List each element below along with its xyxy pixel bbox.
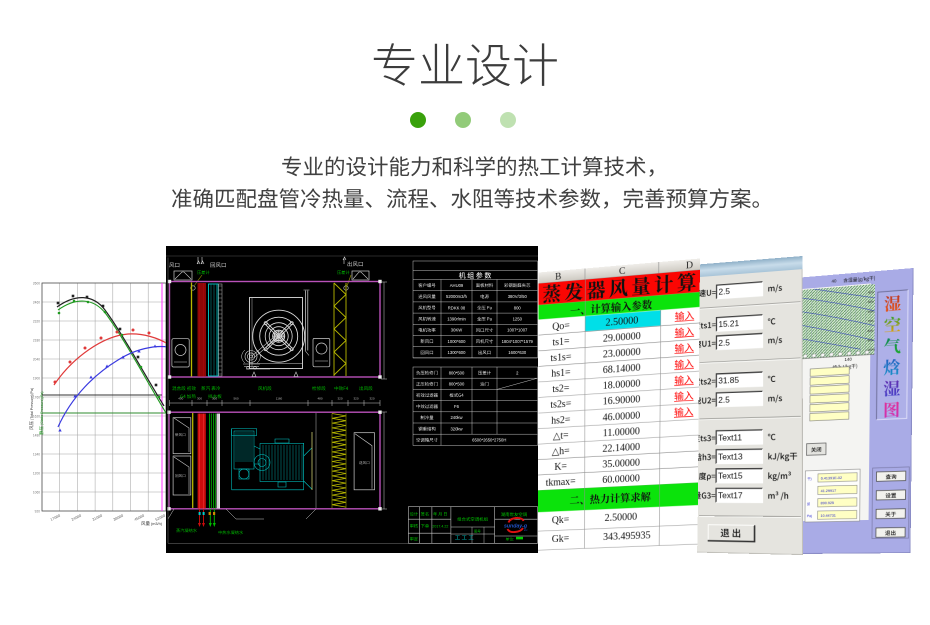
svg-text:890.925: 890.925 [821, 501, 835, 506]
svg-text:1300*600: 1300*600 [448, 350, 467, 355]
svg-text:B: B [555, 271, 561, 282]
svg-text:(Static Pressure)(Pa): (Static Pressure)(Pa) [40, 391, 44, 425]
svg-text:800*500: 800*500 [449, 382, 465, 387]
svg-text:2.5: 2.5 [718, 337, 729, 348]
svg-text:1250: 1250 [513, 317, 523, 322]
svg-text:1007*1007: 1007*1007 [507, 328, 528, 333]
svg-text:K=: K= [554, 461, 567, 473]
svg-text:1160: 1160 [276, 397, 283, 401]
svg-text:D: D [686, 259, 694, 270]
svg-text:52000m3/h: 52000m3/h [446, 294, 468, 299]
svg-text:22.14000: 22.14000 [602, 441, 640, 455]
svg-text:320: 320 [353, 397, 358, 401]
svg-text:1900: 1900 [33, 377, 40, 381]
svg-text:Qo=: Qo= [552, 320, 570, 333]
svg-text:1340: 1340 [33, 453, 40, 457]
svg-text:1480: 1480 [33, 434, 40, 438]
svg-text:15.21: 15.21 [718, 318, 739, 330]
svg-text:30KW: 30KW [451, 328, 462, 333]
svg-text:△h=: △h= [552, 445, 570, 457]
svg-text:Pa): Pa) [807, 514, 812, 519]
svg-text:Gk=: Gk= [552, 533, 569, 545]
svg-text:ts1s=: ts1s= [551, 351, 572, 364]
svg-text:50%: 50% [868, 299, 875, 304]
svg-text:Text15: Text15 [718, 471, 743, 482]
svg-text:inc: inc [524, 528, 528, 532]
svg-text:343.495935: 343.495935 [603, 530, 651, 543]
svg-text:RDKK 08: RDKK 08 [448, 305, 466, 310]
svg-text:46.00000: 46.00000 [603, 410, 641, 424]
svg-text:2.50000: 2.50000 [605, 511, 638, 524]
svg-text:1200: 1200 [33, 472, 40, 476]
svg-text:ts2s=: ts2s= [550, 398, 571, 411]
svg-text:100%: 100% [867, 347, 875, 352]
svg-text:40%: 40% [868, 290, 875, 295]
svg-text:1600*630: 1600*630 [508, 350, 527, 355]
svg-text:1804*1007*1579: 1804*1007*1579 [502, 339, 534, 344]
svg-text:16.90000: 16.90000 [603, 394, 641, 408]
svg-text:560: 560 [233, 397, 238, 401]
svg-text:2.5: 2.5 [718, 286, 729, 297]
svg-text:Text17: Text17 [718, 490, 743, 501]
svg-text:320: 320 [369, 397, 374, 401]
svg-text:△t=: △t= [553, 430, 569, 442]
svg-text:41.29917: 41.29917 [821, 488, 837, 493]
svg-text:2.5: 2.5 [718, 394, 730, 405]
svg-text:80%: 80% [867, 328, 874, 333]
svg-text:C: C [619, 265, 625, 276]
svg-text:2040: 2040 [33, 358, 40, 362]
svg-text:1060: 1060 [33, 491, 40, 495]
svg-text:140: 140 [844, 356, 852, 362]
svg-text:480: 480 [317, 397, 322, 401]
svg-text:320kw: 320kw [450, 426, 463, 431]
svg-text:380V/3/50: 380V/3/50 [508, 294, 528, 299]
svg-text:Qk=: Qk= [552, 514, 569, 526]
svg-text:800*500: 800*500 [449, 370, 465, 375]
svg-text:干): 干) [807, 477, 811, 482]
svg-text:60.00000: 60.00000 [602, 473, 640, 486]
svg-text:300: 300 [212, 397, 217, 401]
svg-text:18.00000: 18.00000 [603, 378, 641, 392]
svg-text:90%: 90% [867, 338, 874, 343]
svg-text:300: 300 [197, 397, 202, 401]
svg-text:Text13: Text13 [718, 451, 743, 462]
svg-text:2017.4.22: 2017.4.22 [432, 524, 448, 528]
svg-text:800: 800 [514, 305, 522, 310]
svg-text:31.85: 31.85 [718, 375, 739, 386]
svg-text:400: 400 [178, 397, 183, 401]
svg-text:35.00000: 35.00000 [602, 457, 640, 471]
svg-text:F6: F6 [454, 404, 460, 409]
svg-text:60%: 60% [868, 309, 875, 314]
svg-text:Text11: Text11 [718, 432, 742, 443]
svg-text:1390r/min: 1390r/min [447, 317, 466, 322]
svg-text:10.44731: 10.44731 [820, 513, 836, 518]
svg-text:6500*2650*2750H: 6500*2650*2750H [472, 438, 506, 443]
svg-text:920: 920 [35, 510, 41, 514]
svg-text:320: 320 [337, 397, 342, 401]
svg-text:g): g) [807, 501, 810, 505]
svg-text:70%: 70% [868, 318, 875, 323]
svg-text:2180: 2180 [33, 339, 40, 343]
svg-text:hs1=: hs1= [551, 367, 570, 380]
svg-text:hs2=: hs2= [551, 414, 570, 427]
svg-text:240kw: 240kw [450, 415, 463, 420]
svg-text:2460: 2460 [33, 301, 40, 305]
svg-text:1000*600: 1000*600 [448, 339, 467, 344]
svg-text:6.41391E-02: 6.41391E-02 [821, 476, 842, 481]
svg-text:2320: 2320 [33, 320, 40, 324]
svg-text:2.50000: 2.50000 [606, 315, 639, 329]
svg-text:2600: 2600 [33, 282, 40, 286]
svg-text:(m3/h): (m3/h) [151, 522, 163, 526]
svg-text:AHU09: AHU09 [450, 283, 464, 288]
svg-text:11.00000: 11.00000 [603, 426, 640, 440]
svg-text:tkmax=: tkmax= [546, 476, 576, 489]
svg-text:ts1=: ts1= [552, 336, 569, 349]
svg-text:ts2=: ts2= [552, 383, 569, 396]
svg-text:(Total Pressure)(Pa): (Total Pressure)(Pa) [30, 388, 34, 420]
